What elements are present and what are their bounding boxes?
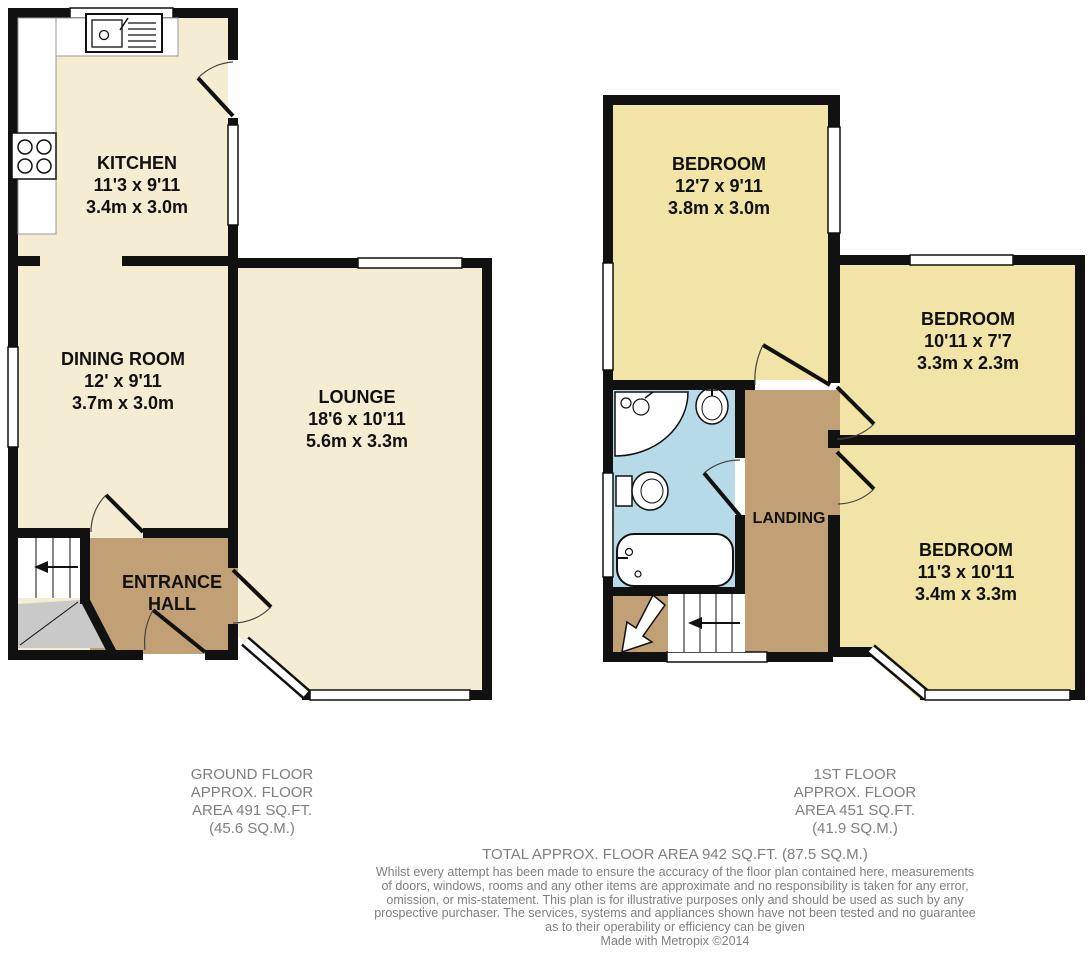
bathroom-window: [603, 473, 613, 577]
bedroom3-label: BEDROOM 11'3 x 10'11 3.4m x 3.3m: [915, 539, 1017, 605]
bedroom2-window: [910, 255, 1013, 265]
bedroom1-right-window: [828, 127, 840, 233]
hob-icon: [12, 133, 56, 179]
room-name: DINING ROOM: [61, 348, 185, 370]
room-name: BEDROOM: [917, 308, 1019, 330]
floorplan-page: KITCHEN 11'3 x 9'11 3.4m x 3.0m DINING R…: [0, 0, 1090, 960]
kitchen-label: KITCHEN 11'3 x 9'11 3.4m x 3.0m: [86, 152, 188, 218]
disclaimer-line: as to their operability or efficiency ca…: [374, 921, 976, 935]
room-size-imperial: 12' x 9'11: [61, 370, 185, 392]
caption-line: APPROX. FLOOR: [191, 784, 314, 802]
caption-line: (45.6 SQ.M.): [191, 820, 314, 838]
metropix-credit: Made with Metropix ©2014: [374, 935, 976, 949]
bedroom1-floor: [613, 105, 830, 380]
dining-room-label: DINING ROOM 12' x 9'11 3.7m x 3.0m: [61, 348, 185, 414]
room-size-metric: 3.7m x 3.0m: [61, 392, 185, 414]
disclaimer-line: Whilst every attempt has been made to en…: [374, 866, 976, 880]
room-size-metric: 3.3m x 2.3m: [917, 352, 1019, 374]
bedroom3-window: [925, 690, 1070, 700]
lounge-bottom-window: [310, 690, 470, 700]
kitchen-counter-left: [18, 18, 56, 234]
sink-icon: [86, 14, 162, 52]
disclaimer-line: of doors, windows, rooms and any other i…: [374, 880, 976, 894]
caption-line: AREA 491 SQ.FT.: [191, 802, 314, 820]
first-floor-caption: 1ST FLOOR APPROX. FLOOR AREA 451 SQ.FT. …: [794, 766, 917, 838]
landing-label: LANDING: [753, 508, 826, 530]
room-size-metric: 3.8m x 3.0m: [668, 197, 770, 219]
lounge-top-window: [358, 258, 462, 268]
room-size-metric: 3.4m x 3.3m: [915, 583, 1017, 605]
room-size-imperial: 11'3 x 10'11: [915, 561, 1017, 583]
disclaimer-line: prospective purchaser. The services, sys…: [374, 907, 976, 921]
room-name: KITCHEN: [86, 152, 188, 174]
room-size-imperial: 18'6 x 10'11: [306, 408, 408, 430]
toilet-icon: [616, 472, 668, 510]
entrance-hall-label: ENTRANCE HALL: [112, 571, 232, 615]
caption-line: 1ST FLOOR: [794, 766, 917, 784]
lounge-floor: [238, 258, 492, 700]
room-size-metric: 3.4m x 3.0m: [86, 196, 188, 218]
caption-line: (41.9 SQ.M.): [794, 820, 917, 838]
stairs-window: [667, 652, 767, 662]
lounge-label: LOUNGE 18'6 x 10'11 5.6m x 3.3m: [306, 386, 408, 452]
room-name: BEDROOM: [668, 153, 770, 175]
bedroom2-label: BEDROOM 10'11 x 7'7 3.3m x 2.3m: [917, 308, 1019, 374]
bath-icon: [617, 534, 733, 586]
ground-floor-caption: GROUND FLOOR APPROX. FLOOR AREA 491 SQ.F…: [191, 766, 314, 838]
room-size-metric: 5.6m x 3.3m: [306, 430, 408, 452]
caption-line: APPROX. FLOOR: [794, 784, 917, 802]
room-size-imperial: 11'3 x 9'11: [86, 174, 188, 196]
bedroom1-left-window: [603, 263, 613, 370]
basin-icon: [696, 388, 728, 424]
caption-line: GROUND FLOOR: [191, 766, 314, 784]
room-name: LOUNGE: [306, 386, 408, 408]
room-size-imperial: 12'7 x 9'11: [668, 175, 770, 197]
disclaimer-text: Whilst every attempt has been made to en…: [374, 866, 976, 949]
disclaimer-line: omission, or mis-statement. This plan is…: [374, 894, 976, 908]
bedroom1-label: BEDROOM 12'7 x 9'11 3.8m x 3.0m: [668, 153, 770, 219]
total-floor-area: TOTAL APPROX. FLOOR AREA 942 SQ.FT. (87.…: [482, 846, 868, 864]
room-size-imperial: 10'11 x 7'7: [917, 330, 1019, 352]
room-name: BEDROOM: [915, 539, 1017, 561]
kitchen-right-window: [228, 125, 238, 225]
dining-window: [8, 347, 18, 447]
caption-line: AREA 451 SQ.FT.: [794, 802, 917, 820]
